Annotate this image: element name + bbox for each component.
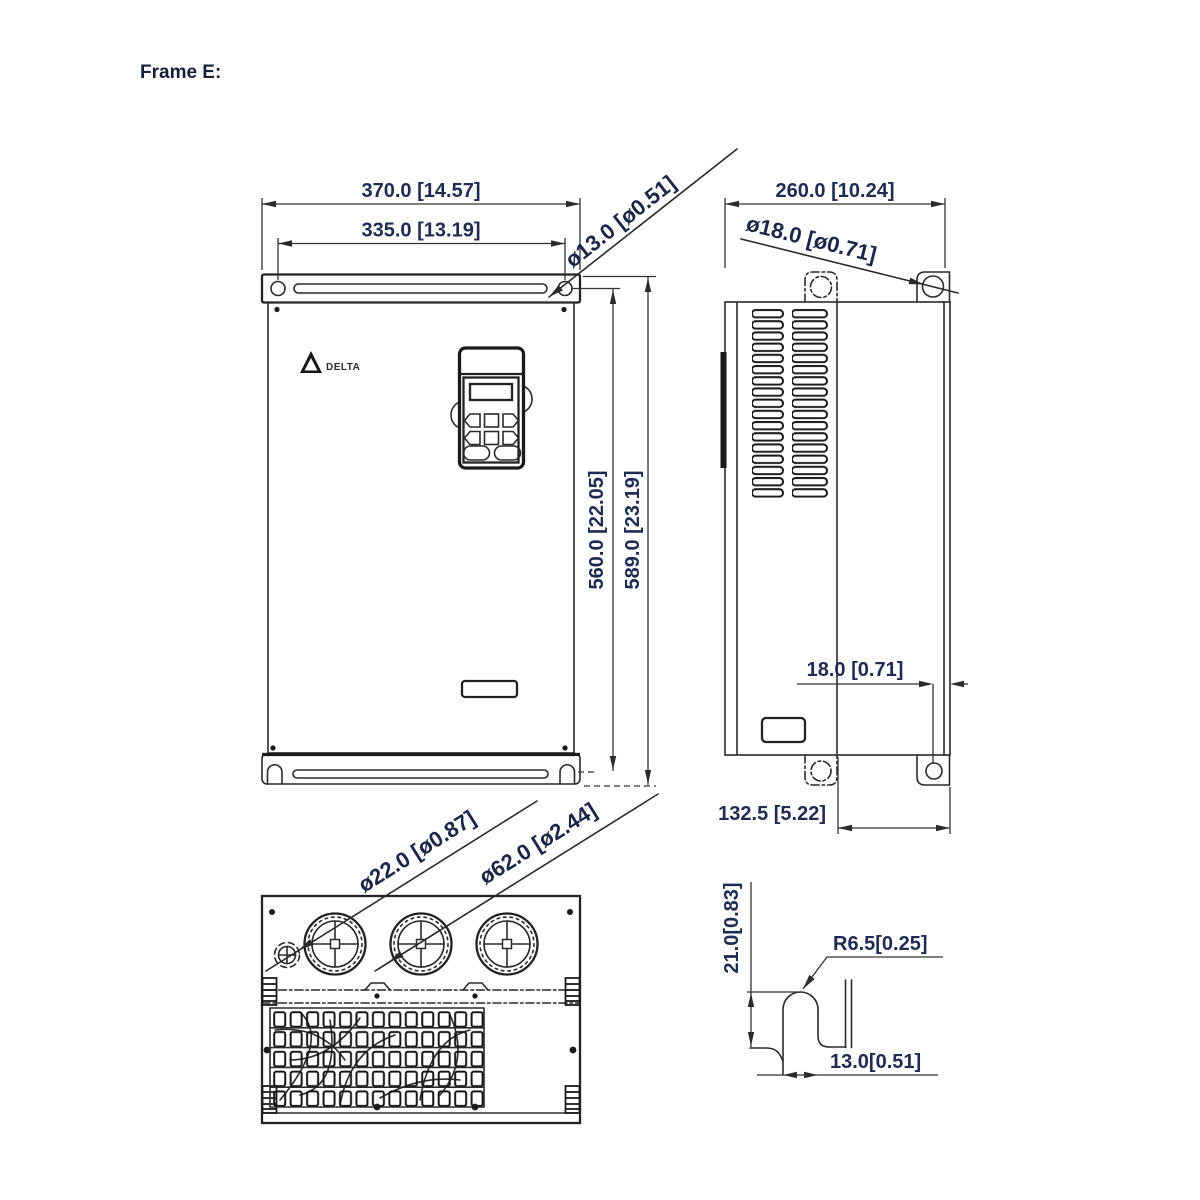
top-left-mounting-hole [271, 282, 285, 296]
dim-front-hole-span: 335.0 [13.19] [278, 220, 565, 281]
dim-text-top-hole-dia: ø13.0 [ø0.51] [560, 170, 680, 272]
dim-text-front-overall-height: 589.0 [23.19] [622, 471, 644, 590]
side-cutout [762, 718, 805, 742]
nameplate [462, 681, 517, 697]
keypad-display [470, 384, 512, 400]
vent-slots-right [792, 308, 828, 498]
dim-text-front-hole-height: 560.0 [22.05] [586, 471, 608, 590]
bottom-view [262, 896, 580, 1123]
bottom-mounting-slot [293, 770, 548, 778]
fan-grille [270, 1008, 484, 1108]
top-mounting-plate [262, 275, 580, 303]
dim-detail-fillet-radius: R6.5[0.25] [800, 933, 943, 991]
dim-text-small-hole-dia: ø22.0 [ø0.87] [354, 805, 480, 897]
dim-text-detail-fillet-radius: R6.5[0.25] [833, 933, 928, 955]
front-view: DELTA [262, 275, 580, 785]
dim-front-hole-height: 560.0 [22.05] [571, 289, 620, 773]
dim-text-side-mount-depth: 132.5 [5.22] [718, 803, 826, 825]
side-view [721, 272, 951, 785]
top-mounting-slot [294, 284, 547, 293]
dimension-drawing-page: Frame E: [0, 0, 1200, 1200]
bottom-mounting-plate [262, 745, 580, 784]
dim-text-fan-hole-dia: ø62.0 [ø2.44] [475, 797, 601, 889]
delta-logo-icon: DELTA [300, 351, 360, 373]
detail-view: 21.0[0.83] R6.5[0.25] 13.0[0.51] [721, 882, 943, 1078]
side-top-tab-hidden [805, 272, 837, 302]
dim-side-hole-edge-offset: 18.0 [0.71] [797, 659, 968, 764]
dim-detail-slot-width: 13.0[0.51] [757, 1051, 938, 1078]
bottom-left-keyhole-slot [268, 765, 283, 784]
drawing-svg: DELTA [0, 0, 1200, 1200]
dim-text-detail-slot-height: 21.0[0.83] [721, 882, 743, 973]
dim-text-front-width: 370.0 [14.57] [362, 180, 481, 202]
dim-text-side-depth: 260.0 [10.24] [776, 180, 895, 202]
dim-small-hole-dia: ø22.0 [ø0.87] [266, 801, 537, 971]
dim-side-tab-hole-dia: ø18.0 [ø0.71] [741, 211, 958, 293]
side-edge-rib [721, 352, 727, 468]
dim-text-detail-slot-width: 13.0[0.51] [830, 1051, 921, 1073]
side-bottom-tab-hidden [805, 755, 837, 785]
dim-side-mount-depth: 132.5 [5.22] [718, 757, 950, 834]
bottom-right-keyhole-slot [560, 765, 575, 784]
dim-text-side-tab-hole-dia: ø18.0 [ø0.71] [744, 211, 879, 268]
fan-hole-2 [391, 914, 452, 975]
fan-hole-1 [305, 914, 366, 975]
fan-hole-3 [477, 914, 538, 975]
dim-text-front-hole-span: 335.0 [13.19] [362, 220, 481, 242]
delta-logo-text: DELTA [326, 362, 360, 373]
vent-slots-left [752, 308, 784, 498]
dim-detail-slot-height: 21.0[0.83] [721, 882, 801, 1047]
keypad [451, 348, 532, 468]
side-bottom-tab-hole [926, 763, 942, 779]
dim-text-side-hole-edge-offset: 18.0 [0.71] [807, 659, 904, 681]
